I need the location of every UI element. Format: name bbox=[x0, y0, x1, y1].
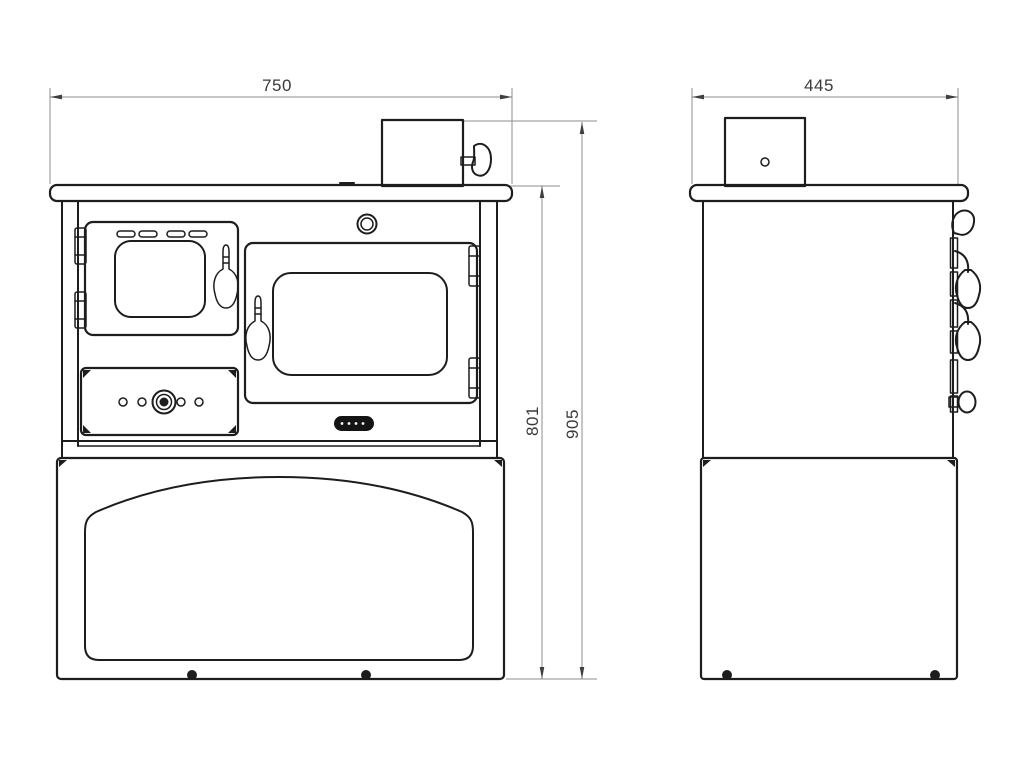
technical-drawing-canvas: 750 445 801 905 bbox=[0, 0, 1024, 768]
thermostat-dial bbox=[153, 391, 176, 414]
firebox-handle bbox=[246, 296, 270, 360]
wood-storage-compartment bbox=[57, 458, 504, 680]
control-panel bbox=[81, 368, 238, 435]
top-plate bbox=[50, 183, 512, 201]
dim-label-overall-height: 905 bbox=[564, 394, 582, 454]
firebox-hinges bbox=[469, 246, 480, 398]
flue-pin-hole bbox=[761, 158, 769, 166]
side-flue-collar bbox=[725, 118, 805, 186]
dim-front-width bbox=[50, 88, 512, 184]
oven-door-window bbox=[115, 241, 205, 317]
flue-collar bbox=[382, 120, 463, 186]
side-top-plate bbox=[690, 185, 968, 201]
stove-drawing bbox=[0, 0, 1024, 768]
oven-door-vents bbox=[117, 231, 207, 237]
oven-door-handle bbox=[214, 245, 238, 308]
front-view bbox=[50, 120, 512, 680]
dim-label-front-width: 750 bbox=[247, 77, 307, 95]
side-damper-knob-top bbox=[952, 211, 974, 235]
side-storage-compartment bbox=[701, 458, 957, 680]
side-body bbox=[703, 201, 953, 458]
side-view bbox=[690, 118, 980, 680]
dim-label-height-to-cooktop: 801 bbox=[524, 391, 542, 451]
dim-label-side-depth: 445 bbox=[789, 77, 849, 95]
flue-damper-knob bbox=[461, 144, 491, 176]
air-inlet-port bbox=[358, 215, 377, 234]
stove-body bbox=[62, 201, 497, 458]
brand-badge bbox=[334, 416, 374, 431]
oven-door bbox=[75, 222, 238, 335]
side-door-handles bbox=[955, 251, 980, 360]
arched-drawer-panel bbox=[85, 477, 473, 660]
dim-side-depth bbox=[692, 88, 958, 184]
firebox-door bbox=[245, 243, 480, 403]
firebox-window bbox=[273, 273, 447, 375]
